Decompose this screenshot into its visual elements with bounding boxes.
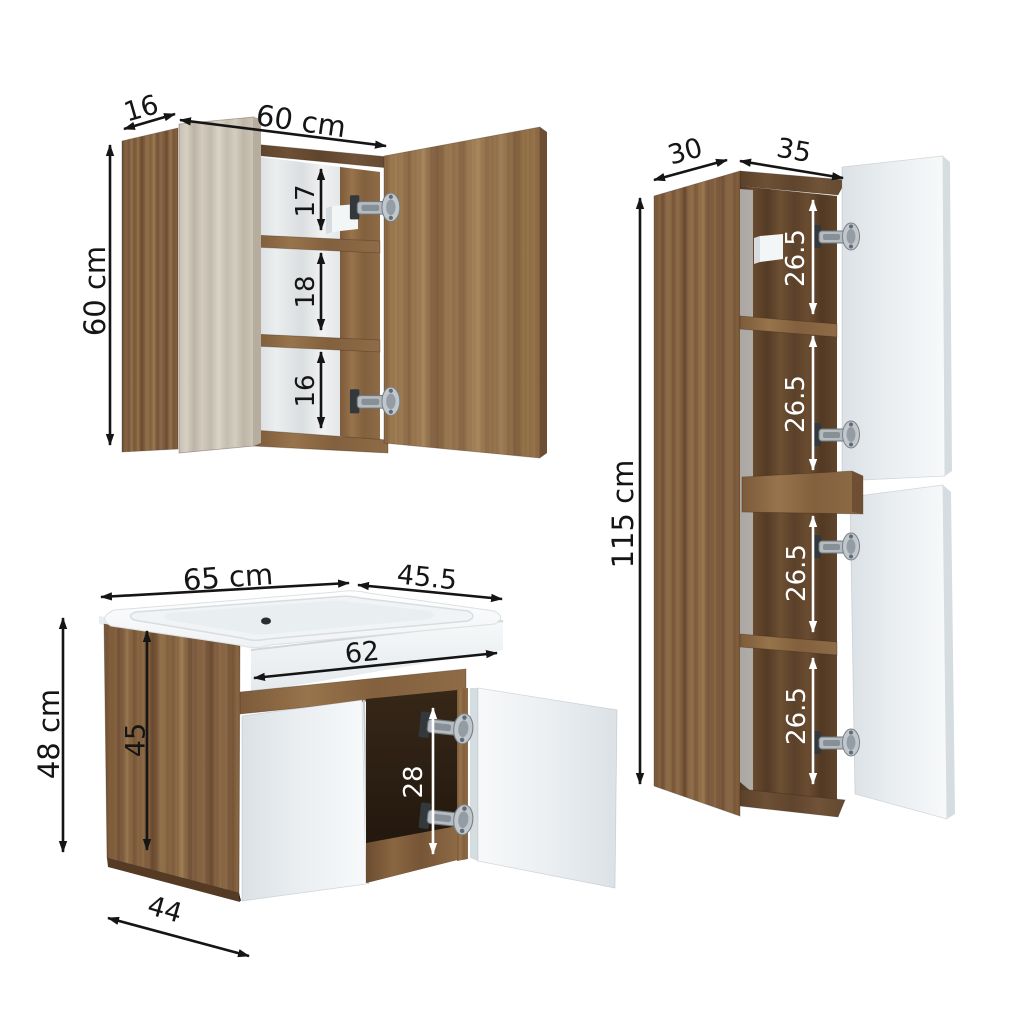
tall-height-label: 115 cm [606,460,640,569]
tall-cabinet-lower-door [850,485,947,819]
mirror-cabinet: 60 cm 16 60 cm 17 18 16 [78,89,547,458]
tall-section2-label: 26.5 [781,375,811,433]
mirror-section2-label: 18 [291,275,321,308]
vanity-width-label: 65 cm [182,557,274,597]
led-driver-box [760,234,783,262]
mirror-depth-label: 16 [120,89,162,128]
vanity-cabinet: 65 cm 45.5 62 48 cm 45 28 44 [32,557,617,956]
mirror-cabinet-open-door-edge [540,127,547,458]
tall-cabinet-middle-divider [742,471,863,514]
vanity-left-door [242,700,366,901]
vanity-bottom-depth-label: 44 [144,890,186,929]
tall-cabinet-middle-divider-end [852,471,863,514]
vanity-inner-width-label: 62 [343,636,380,670]
tall-cabinet: 115 cm 30 35 26.5 26.5 26.5 26.5 [606,132,955,819]
tall-section4-label: 26.5 [782,687,812,745]
mirror-section1-label: 17 [291,184,321,217]
mirror-width-label: 60 cm [254,98,348,144]
led-driver-box-side [326,206,332,234]
vanity-depth-label: 45.5 [395,559,458,596]
diagram-canvas: 60 cm 16 60 cm 17 18 16 115 c [0,0,1024,1024]
mirror-door [179,117,254,453]
faucet-hole-icon [261,618,271,625]
vanity-right-door [478,688,617,888]
mirror-height-label: 60 cm [78,246,112,336]
tall-section1-label: 26.5 [781,229,811,287]
tall-width-label: 35 [774,133,813,169]
product-dimension-diagram: 60 cm 16 60 cm 17 18 16 115 c [0,0,1024,1024]
vanity-right-door-edge [470,688,478,861]
vanity-opening-label: 28 [399,765,429,798]
tall-section3-label: 26.5 [782,544,812,602]
tall-depth-label: 30 [664,132,706,171]
vanity-height-label: 48 cm [32,689,66,779]
vanity-body-height-label: 45 [120,723,151,757]
mirror-door-edge [254,117,261,446]
led-driver-box-side [754,236,760,264]
mirror-section3-label: 16 [291,374,321,407]
